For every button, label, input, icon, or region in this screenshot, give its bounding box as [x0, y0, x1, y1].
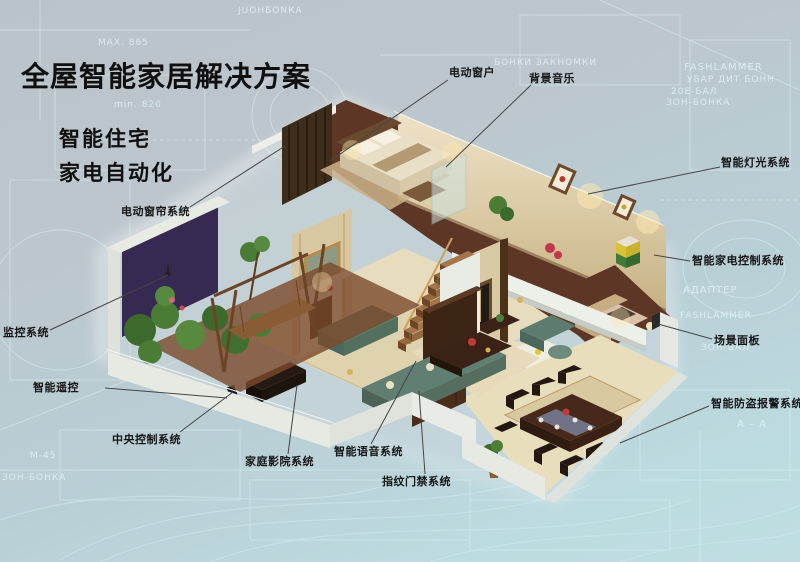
- callout-label-fingerprint-access: 指纹门禁系统: [382, 473, 451, 489]
- callout-label-smart-voice: 智能语音系统: [334, 443, 403, 459]
- callout-label-smart-remote: 智能遥控: [33, 379, 79, 395]
- callout-labels: 电动窗户背景音乐智能灯光系统智能家电控制系统场景面板智能防盗报警系统电动窗帘系统…: [0, 0, 800, 562]
- callout-label-central-control: 中央控制系统: [112, 431, 181, 447]
- callout-label-burglar-alarm: 智能防盗报警系统: [711, 395, 800, 411]
- callout-label-background-music: 背景音乐: [529, 70, 575, 86]
- callout-label-smart-appliance-control: 智能家电控制系统: [692, 252, 784, 268]
- callout-label-electric-window: 电动窗户: [449, 64, 495, 80]
- callout-label-smart-lighting: 智能灯光系统: [721, 154, 790, 170]
- callout-label-electric-curtain: 电动窗帘系统: [121, 203, 190, 219]
- callout-label-home-theater: 家庭影院系统: [245, 453, 314, 469]
- callout-label-monitoring: 监控系统: [3, 324, 49, 340]
- smart-home-poster: МАХ. 865min. 820JUОНБОNКАБОНКИ ЗАКНОМКИF…: [0, 0, 800, 562]
- callout-label-scene-panel: 场景面板: [714, 332, 760, 348]
